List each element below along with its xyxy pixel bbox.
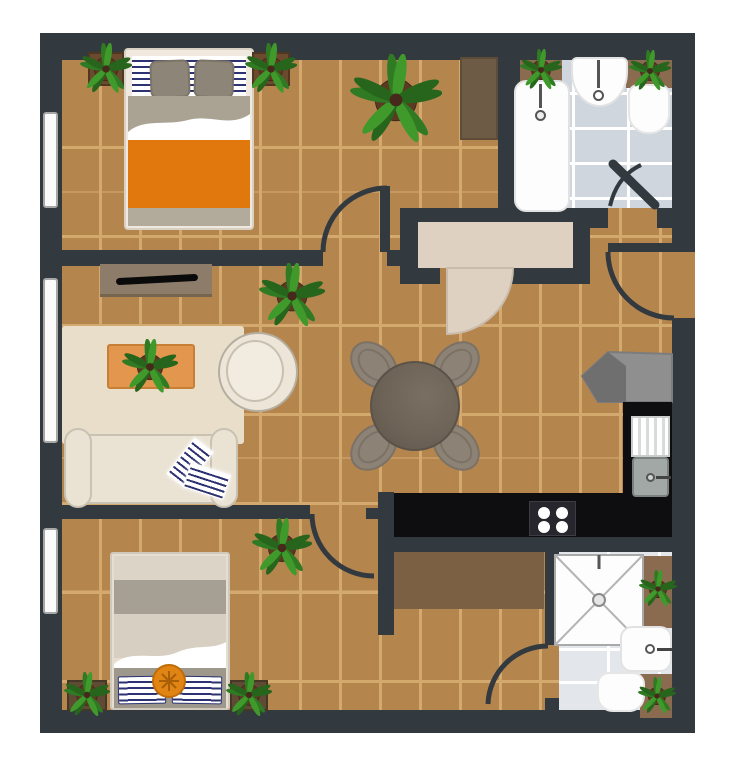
closet-interior: [418, 222, 573, 268]
kitchen-faucet-pipe-icon: [656, 476, 671, 479]
potted-plant: [520, 49, 562, 91]
plant-icon: [226, 672, 272, 718]
plant-icon: [638, 677, 676, 715]
potted-plant: [226, 672, 272, 718]
plant-icon: [64, 672, 110, 718]
orange-round-cushion: [152, 664, 186, 698]
armchair: [218, 332, 298, 412]
bedroom2-east-wall: [378, 492, 394, 635]
plant-icon: [520, 49, 562, 91]
bathtub: [514, 80, 570, 212]
hall-runner-rug: [394, 552, 544, 609]
plant-icon: [350, 54, 442, 146]
outer-wall-right-upper: [672, 33, 695, 252]
bathroom1-sink-faucet-pipe-icon: [597, 60, 600, 88]
sofa-armrest-left: [64, 428, 92, 508]
bathroom2-faucet-pipe-icon: [657, 648, 672, 651]
double-bed: [124, 48, 254, 230]
plant-icon: [259, 263, 325, 329]
potted-plant: [639, 570, 677, 608]
burners-icon: [530, 502, 577, 537]
window-living-room: [43, 278, 58, 443]
plant-icon: [80, 43, 132, 95]
outer-wall-right-lower: [672, 318, 695, 733]
bed-footer: [128, 208, 250, 226]
bed2-top-section: [114, 556, 226, 580]
bed-blanket-wave: [128, 96, 250, 140]
bathroom2-faucet-knob-icon: [645, 644, 655, 654]
potted-plant: [350, 54, 442, 146]
bathroom1-sink-faucet-knob-icon: [593, 90, 604, 101]
orange-blanket: [128, 140, 250, 208]
window-bedroom2: [43, 528, 58, 614]
potted-plant: [252, 518, 312, 578]
kitchen-faucet-knob-icon: [646, 473, 655, 482]
potted-plant: [122, 339, 178, 395]
potted-plant: [259, 263, 325, 329]
armchair-seat: [226, 340, 284, 402]
dining-table: [370, 361, 460, 451]
bathroom1-south-wall-right: [657, 208, 672, 228]
bathtub-faucet-knob-icon: [535, 110, 546, 121]
potted-plant: [638, 677, 676, 715]
entrance-threshold-floor: [672, 252, 695, 318]
closet-door-gap: [440, 268, 507, 284]
outer-wall-bottom: [40, 710, 695, 733]
potted-plant: [80, 43, 132, 95]
potted-plant: [64, 672, 110, 718]
sofa: [64, 428, 238, 508]
plant-icon: [252, 518, 312, 578]
bathroom2-west-wall-stub: [545, 698, 559, 710]
pillow-left: [149, 59, 190, 98]
plant-icon: [639, 570, 677, 608]
bed2-gray-band: [114, 580, 226, 614]
window-bedroom1: [43, 112, 58, 208]
floor-plan: [0, 0, 737, 768]
plant-icon: [629, 50, 671, 92]
wardrobe: [460, 57, 498, 140]
single-bed: [110, 552, 230, 710]
kitchen-south-wall: [394, 537, 672, 552]
refrigerator: [580, 350, 674, 404]
pillow-right: [193, 59, 234, 98]
sink-drainboard: [631, 416, 670, 457]
potted-plant: [245, 43, 297, 95]
plant-icon: [245, 43, 297, 95]
cooktop: [529, 501, 576, 536]
cushion-stitch-icon: [154, 666, 184, 696]
plant-icon: [122, 339, 178, 395]
potted-plant: [629, 50, 671, 92]
